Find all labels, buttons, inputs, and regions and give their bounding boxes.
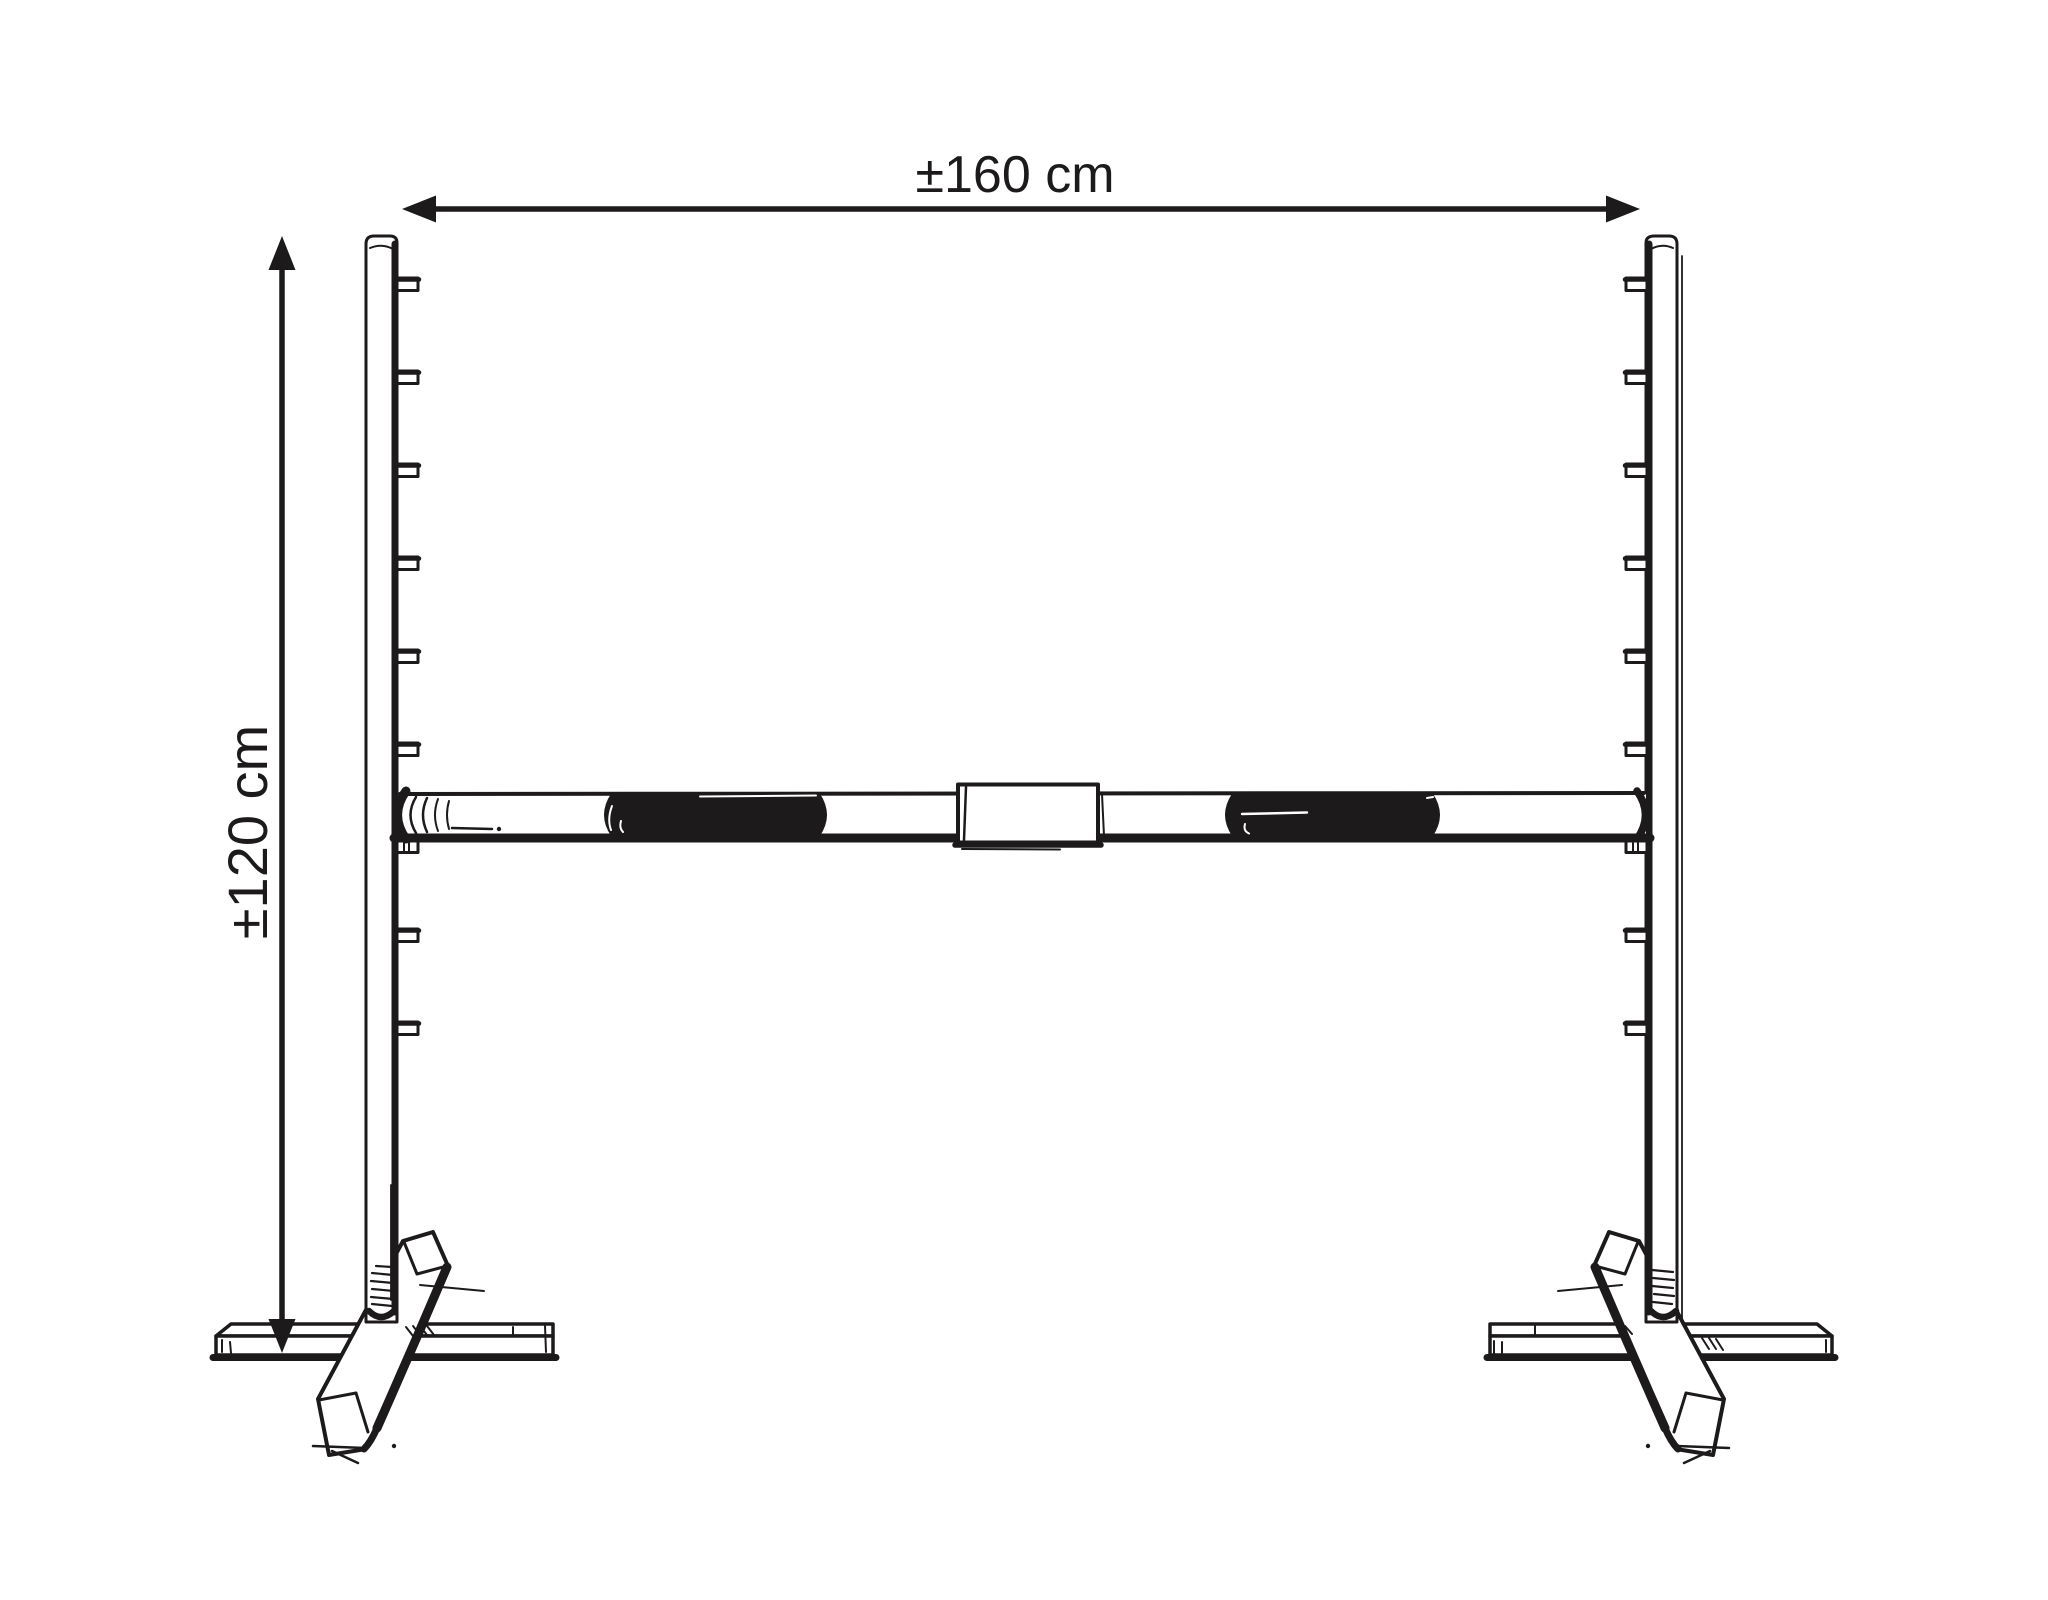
- left-post-pegs: [396, 278, 419, 1035]
- show-jump-technical-drawing: ±160 cm ±120 cm: [0, 0, 2048, 1600]
- rail-band-right-highlight: [1242, 813, 1307, 815]
- jump-standard-diagram: ±160 cm ±120 cm: [0, 0, 2048, 1600]
- rail-ink-dot: [497, 827, 501, 831]
- right-standard: [1625, 236, 1682, 1322]
- arrowhead-up-icon: [269, 236, 296, 270]
- arrowhead-right-icon: [1606, 196, 1640, 223]
- rail: [394, 785, 1650, 852]
- height-dimension-label: ±120 cm: [216, 725, 279, 939]
- arrowhead-left-icon: [402, 196, 436, 223]
- left-base-ink-dot: [392, 1444, 396, 1448]
- rail-center-sleeve: [958, 785, 1098, 843]
- left-standard: [366, 236, 419, 1322]
- rail-dark-band-left: [605, 794, 826, 836]
- width-dimension: ±160 cm: [402, 146, 1640, 223]
- rail-sketch-line: [452, 828, 492, 829]
- width-dimension-label: ±160 cm: [915, 146, 1114, 204]
- height-dimension: ±120 cm: [216, 236, 296, 1353]
- right-base-ink-dot: [1646, 1444, 1650, 1448]
